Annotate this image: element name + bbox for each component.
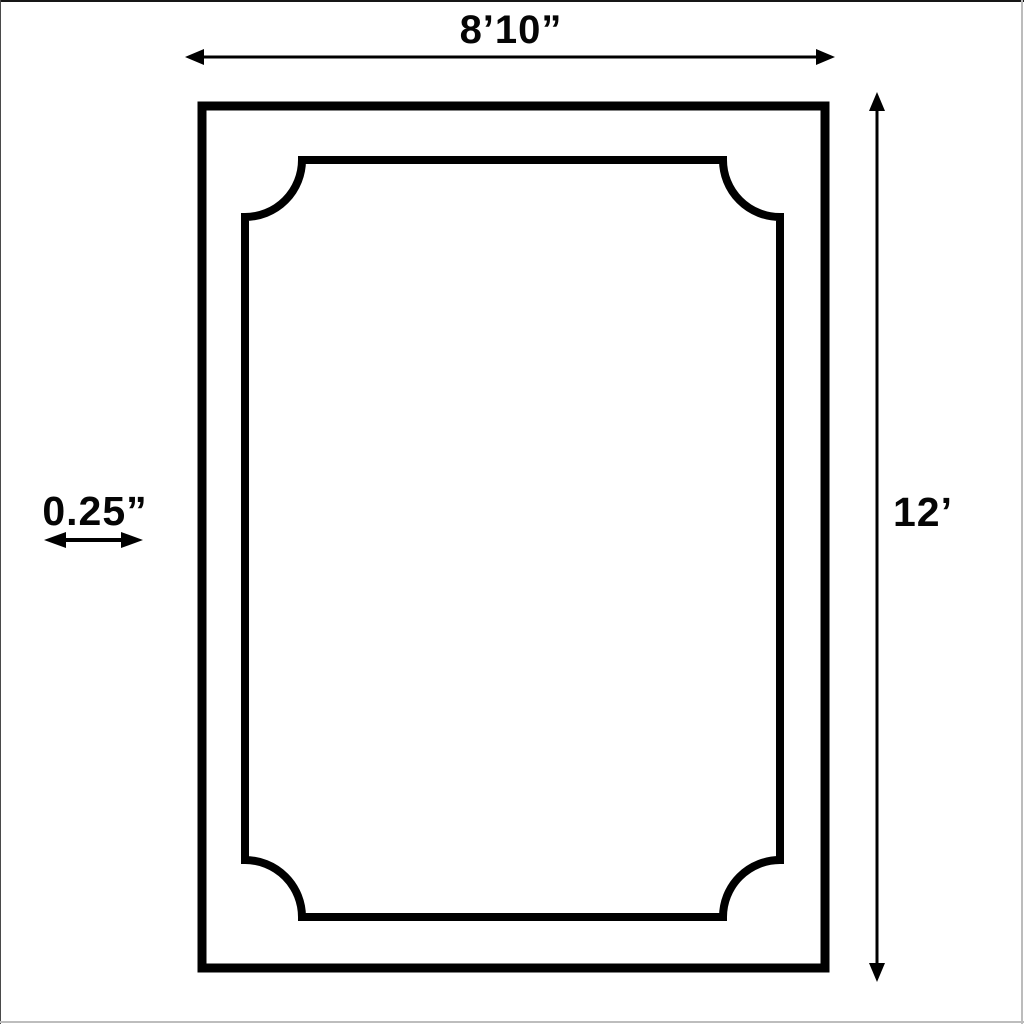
width-dimension-label: 8’10” [411, 9, 611, 51]
outer-rectangle [202, 106, 825, 968]
arrowhead-left-icon [185, 49, 204, 65]
height-dimension-label: 12’ [893, 491, 1013, 533]
arrowhead-up-icon [869, 92, 885, 111]
thickness-dimension-arrow [44, 532, 143, 548]
dimension-diagram-canvas: 8’10” 0.25” 12’ [0, 0, 1024, 1024]
arrowhead-right-small-icon [121, 532, 143, 548]
arrowhead-left-small-icon [44, 532, 66, 548]
arrowhead-right-icon [816, 49, 835, 65]
height-dimension-arrow [869, 92, 885, 982]
inner-scalloped-border [245, 160, 780, 917]
arrowhead-down-icon [869, 963, 885, 982]
thickness-dimension-label: 0.25” [15, 490, 175, 532]
